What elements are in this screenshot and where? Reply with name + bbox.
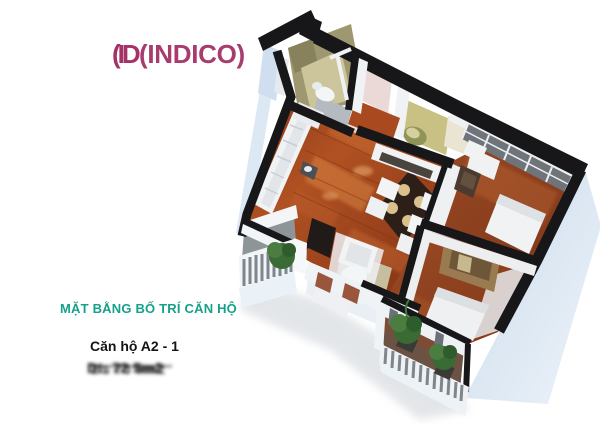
svg-text:(INDICO): (INDICO)	[139, 39, 245, 69]
svg-text:Ds 78 6m2: Ds 78 6m2	[91, 361, 165, 378]
svg-text:(ID: (ID	[112, 39, 140, 69]
svg-text:MẶT BẰNG BỐ TRÍ CĂN HỘ: MẶT BẰNG BỐ TRÍ CĂN HỘ	[60, 301, 237, 316]
svg-text:Căn hộ A2 - 1: Căn hộ A2 - 1	[90, 338, 179, 354]
